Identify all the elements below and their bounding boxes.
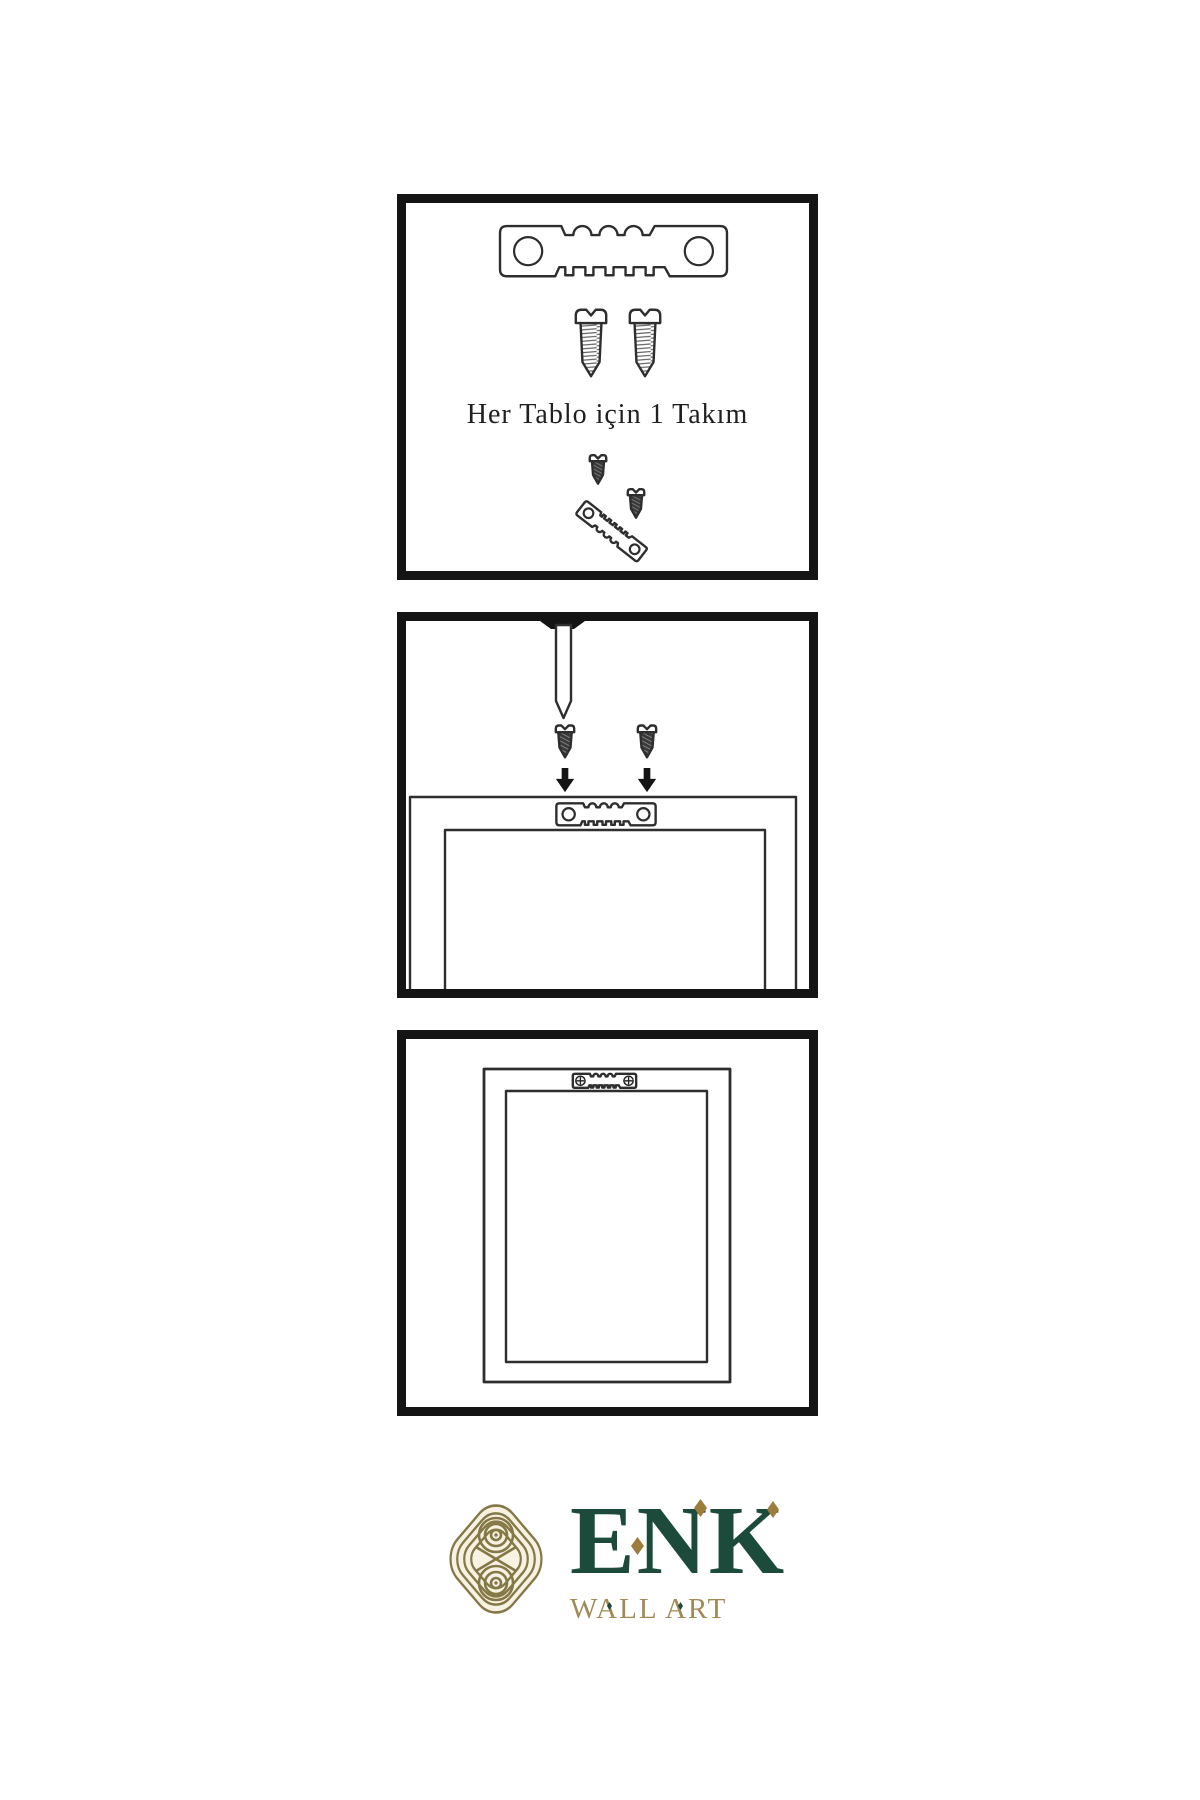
- mounting-step-graphic: [406, 621, 809, 989]
- panel-hung-frame: [397, 1030, 818, 1416]
- screw-dark-icon: [638, 726, 656, 758]
- brand-name: ENK: [570, 1492, 800, 1589]
- screw-dark-icon: [556, 726, 574, 758]
- hardware-kit-graphic: [406, 203, 809, 571]
- sawtooth-hanger-icon: [500, 226, 727, 276]
- screw-head-icon: [576, 1076, 585, 1085]
- screw-light-icon: [630, 310, 660, 377]
- kit-caption: Her Tablo için 1 Takım: [406, 399, 809, 431]
- screw-light-icon: [576, 310, 606, 377]
- arrow-down-icon: [556, 768, 574, 792]
- green-diamond-dot-icon: [607, 1602, 612, 1610]
- screw-dark-icon: [590, 455, 606, 484]
- panel-mounting-step: [397, 612, 818, 998]
- screw-dark-icon: [628, 489, 644, 518]
- nail-icon: [540, 621, 585, 718]
- green-diamond-dot-icon: [678, 1602, 683, 1610]
- screw-head-icon: [624, 1076, 633, 1085]
- panel-hardware-kit: Her Tablo için 1 Takım: [397, 194, 818, 580]
- hung-frame-graphic: [406, 1039, 809, 1407]
- instruction-sheet: Her Tablo için 1 Takım: [0, 0, 1200, 1800]
- brand-logotype: ENK WALL ART: [570, 1492, 800, 1626]
- sawtooth-hanger-icon: [556, 803, 655, 825]
- brand-logo: ENK WALL ART: [440, 1492, 800, 1626]
- knot-logo-icon: [440, 1493, 552, 1625]
- brand-subtitle: WALL ART: [570, 1593, 800, 1626]
- hanger-assembly-icon: [576, 455, 648, 562]
- frame-back-icon: [484, 1069, 730, 1382]
- arrow-down-icon: [638, 768, 656, 792]
